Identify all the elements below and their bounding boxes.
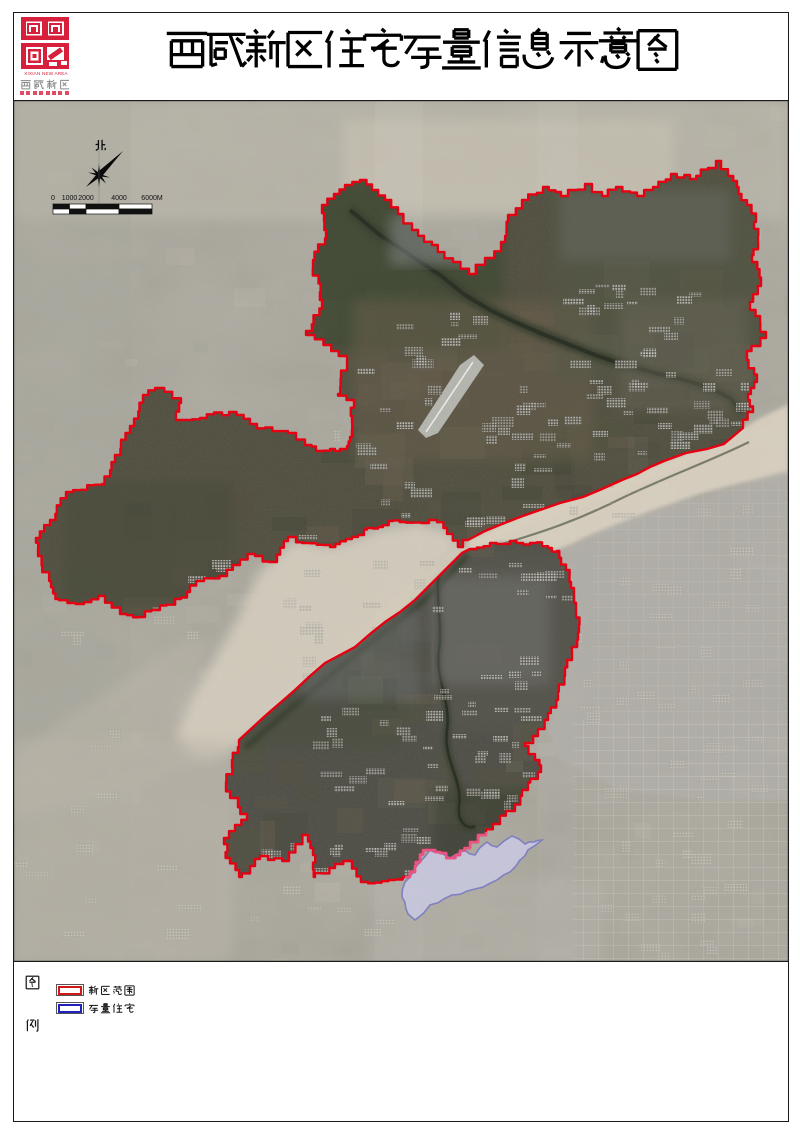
- svg-text:2000: 2000: [78, 195, 94, 202]
- svg-text:6000M: 6000M: [141, 195, 163, 202]
- svg-text:4000: 4000: [111, 195, 127, 202]
- svg-text:1000: 1000: [62, 195, 78, 202]
- svg-text:0: 0: [51, 195, 55, 202]
